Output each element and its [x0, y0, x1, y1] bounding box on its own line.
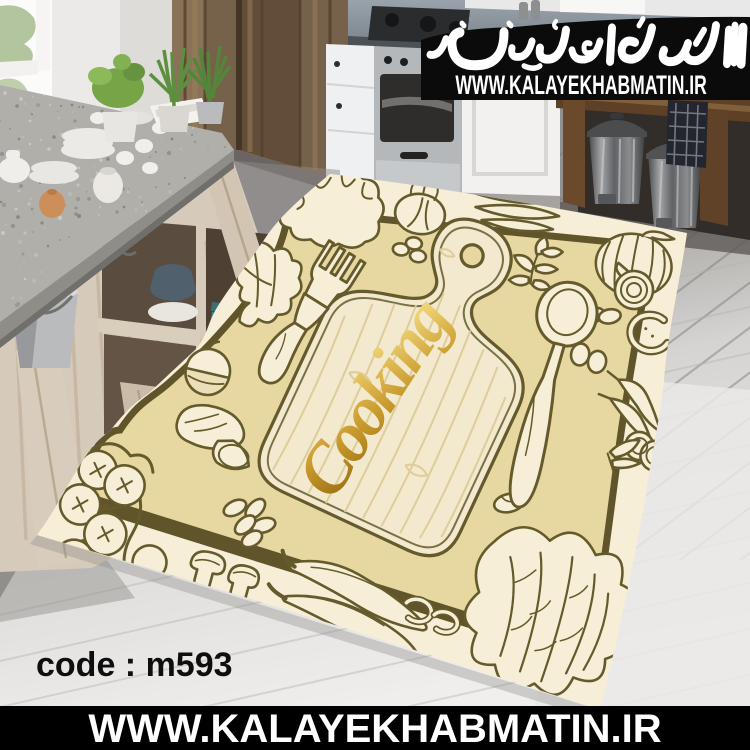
- svg-text:WWW.KALAYEKHABMATIN.IR: WWW.KALAYEKHABMATIN.IR: [455, 69, 706, 100]
